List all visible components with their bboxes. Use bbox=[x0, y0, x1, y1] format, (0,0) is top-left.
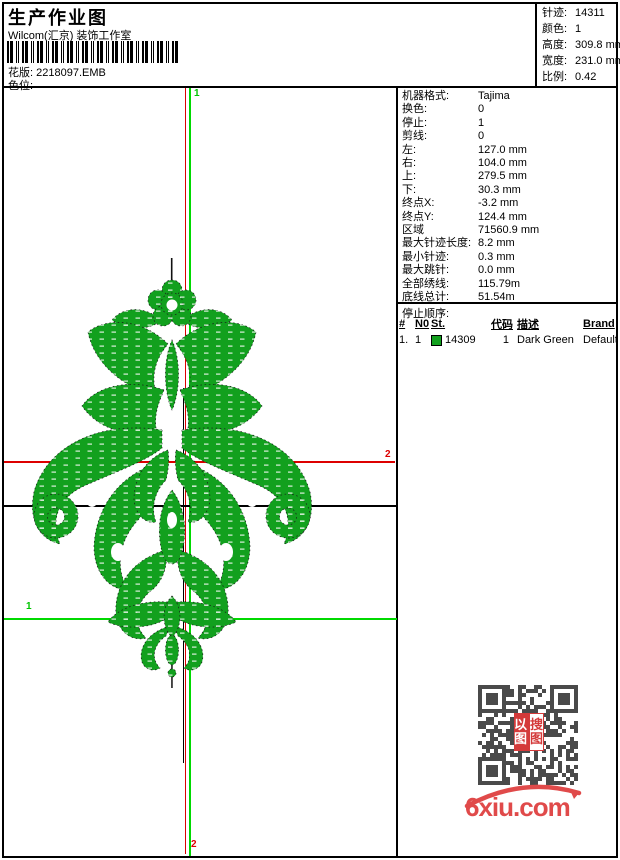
stop-sequence-divider bbox=[396, 302, 618, 304]
machine-info-row: 最大跳针: 0.0 mm bbox=[402, 264, 616, 277]
thread-table-header-cell: Brand bbox=[583, 318, 620, 330]
damask-design bbox=[22, 252, 322, 688]
machine-info-row: 最大针迹长度: 8.2 mm bbox=[402, 237, 616, 250]
machine-info-row: 下: 30.3 mm bbox=[402, 184, 616, 197]
marker-end-bottom: 2 bbox=[191, 840, 197, 850]
marker-end-right: 2 bbox=[385, 450, 391, 460]
watermark-brand: 6xiu.com bbox=[463, 780, 587, 824]
thread-table: #N0St.代码描述Brand元素 1. 1 14309 1 Dark Gree… bbox=[399, 316, 617, 346]
thread-row-description: Dark Green bbox=[517, 334, 581, 346]
machine-info-row: 终点Y: 124.4 mm bbox=[402, 211, 616, 224]
summary-box: 针迹: 14311 颜色: 1 高度: 309.8 mm 宽度: 231.0 m… bbox=[535, 2, 618, 88]
thread-table-header: #N0St.代码描述Brand元素 bbox=[399, 316, 617, 332]
machine-info-list: 机器格式: Tajima 换色: 0 停止: 1 剪线: 0 左: 127.0 … bbox=[402, 90, 616, 305]
thread-swatch bbox=[431, 335, 442, 346]
machine-info-row: 右: 104.0 mm bbox=[402, 157, 616, 170]
panel-divider bbox=[396, 88, 398, 858]
marker-start-top: 1 bbox=[194, 89, 200, 99]
machine-info-row: 上: 279.5 mm bbox=[402, 170, 616, 183]
thread-table-header-cell: 代码 bbox=[491, 316, 515, 332]
machine-info-row: 区域 71560.9 mm bbox=[402, 224, 616, 237]
machine-info-row: 机器格式: Tajima bbox=[402, 90, 616, 103]
thread-row-index: 1. bbox=[399, 334, 413, 346]
machine-info-row: 全部绣线: 115.79m bbox=[402, 278, 616, 291]
summary-row: 针迹: 14311 bbox=[542, 5, 618, 21]
summary-row: 宽度: 231.0 mm bbox=[542, 53, 618, 69]
summary-row: 比例: 0.42 bbox=[542, 69, 618, 85]
thread-row-stitches: 14309 bbox=[445, 334, 476, 346]
machine-info-row: 停止: 1 bbox=[402, 117, 616, 130]
thread-table-header-cell: # bbox=[399, 318, 413, 330]
watermark-site: 6xiu.com bbox=[465, 792, 570, 823]
pattern-value: 2218097.EMB bbox=[36, 67, 106, 79]
thread-row-brand: Default bbox=[583, 334, 620, 346]
machine-info-row: 左: 127.0 mm bbox=[402, 144, 616, 157]
thread-table-header-cell: 描述 bbox=[517, 316, 581, 332]
qr-center-seal: 以图 搜图 bbox=[514, 713, 544, 751]
machine-info-row: 换色: 0 bbox=[402, 103, 616, 116]
thread-table-row: 1. 1 14309 1 Dark Green Default bbox=[399, 334, 617, 346]
production-worksheet: 生产作业图 Wilcom(汇京) 装饰工作室 花版: 2218097.EMB 色… bbox=[0, 0, 620, 860]
machine-info-row: 剪线: 0 bbox=[402, 130, 616, 143]
thread-table-header-cell: N0 bbox=[415, 318, 429, 330]
machine-info-row: 最小针迹: 0.3 mm bbox=[402, 251, 616, 264]
thread-table-header-cell: St. bbox=[431, 318, 489, 330]
summary-list: 针迹: 14311 颜色: 1 高度: 309.8 mm 宽度: 231.0 m… bbox=[542, 5, 618, 85]
color-slot-row: 色位: bbox=[8, 77, 33, 93]
thread-row-needle: 1 bbox=[415, 334, 429, 346]
seal-left-text: 以图 bbox=[514, 713, 529, 751]
summary-row: 颜色: 1 bbox=[542, 21, 618, 37]
barcode bbox=[7, 41, 180, 63]
machine-info-row: 终点X: -3.2 mm bbox=[402, 197, 616, 210]
header-divider bbox=[2, 86, 618, 88]
thread-row-code: 1 bbox=[491, 334, 515, 346]
summary-row: 高度: 309.8 mm bbox=[542, 37, 618, 53]
seal-right-text: 搜图 bbox=[529, 713, 544, 751]
